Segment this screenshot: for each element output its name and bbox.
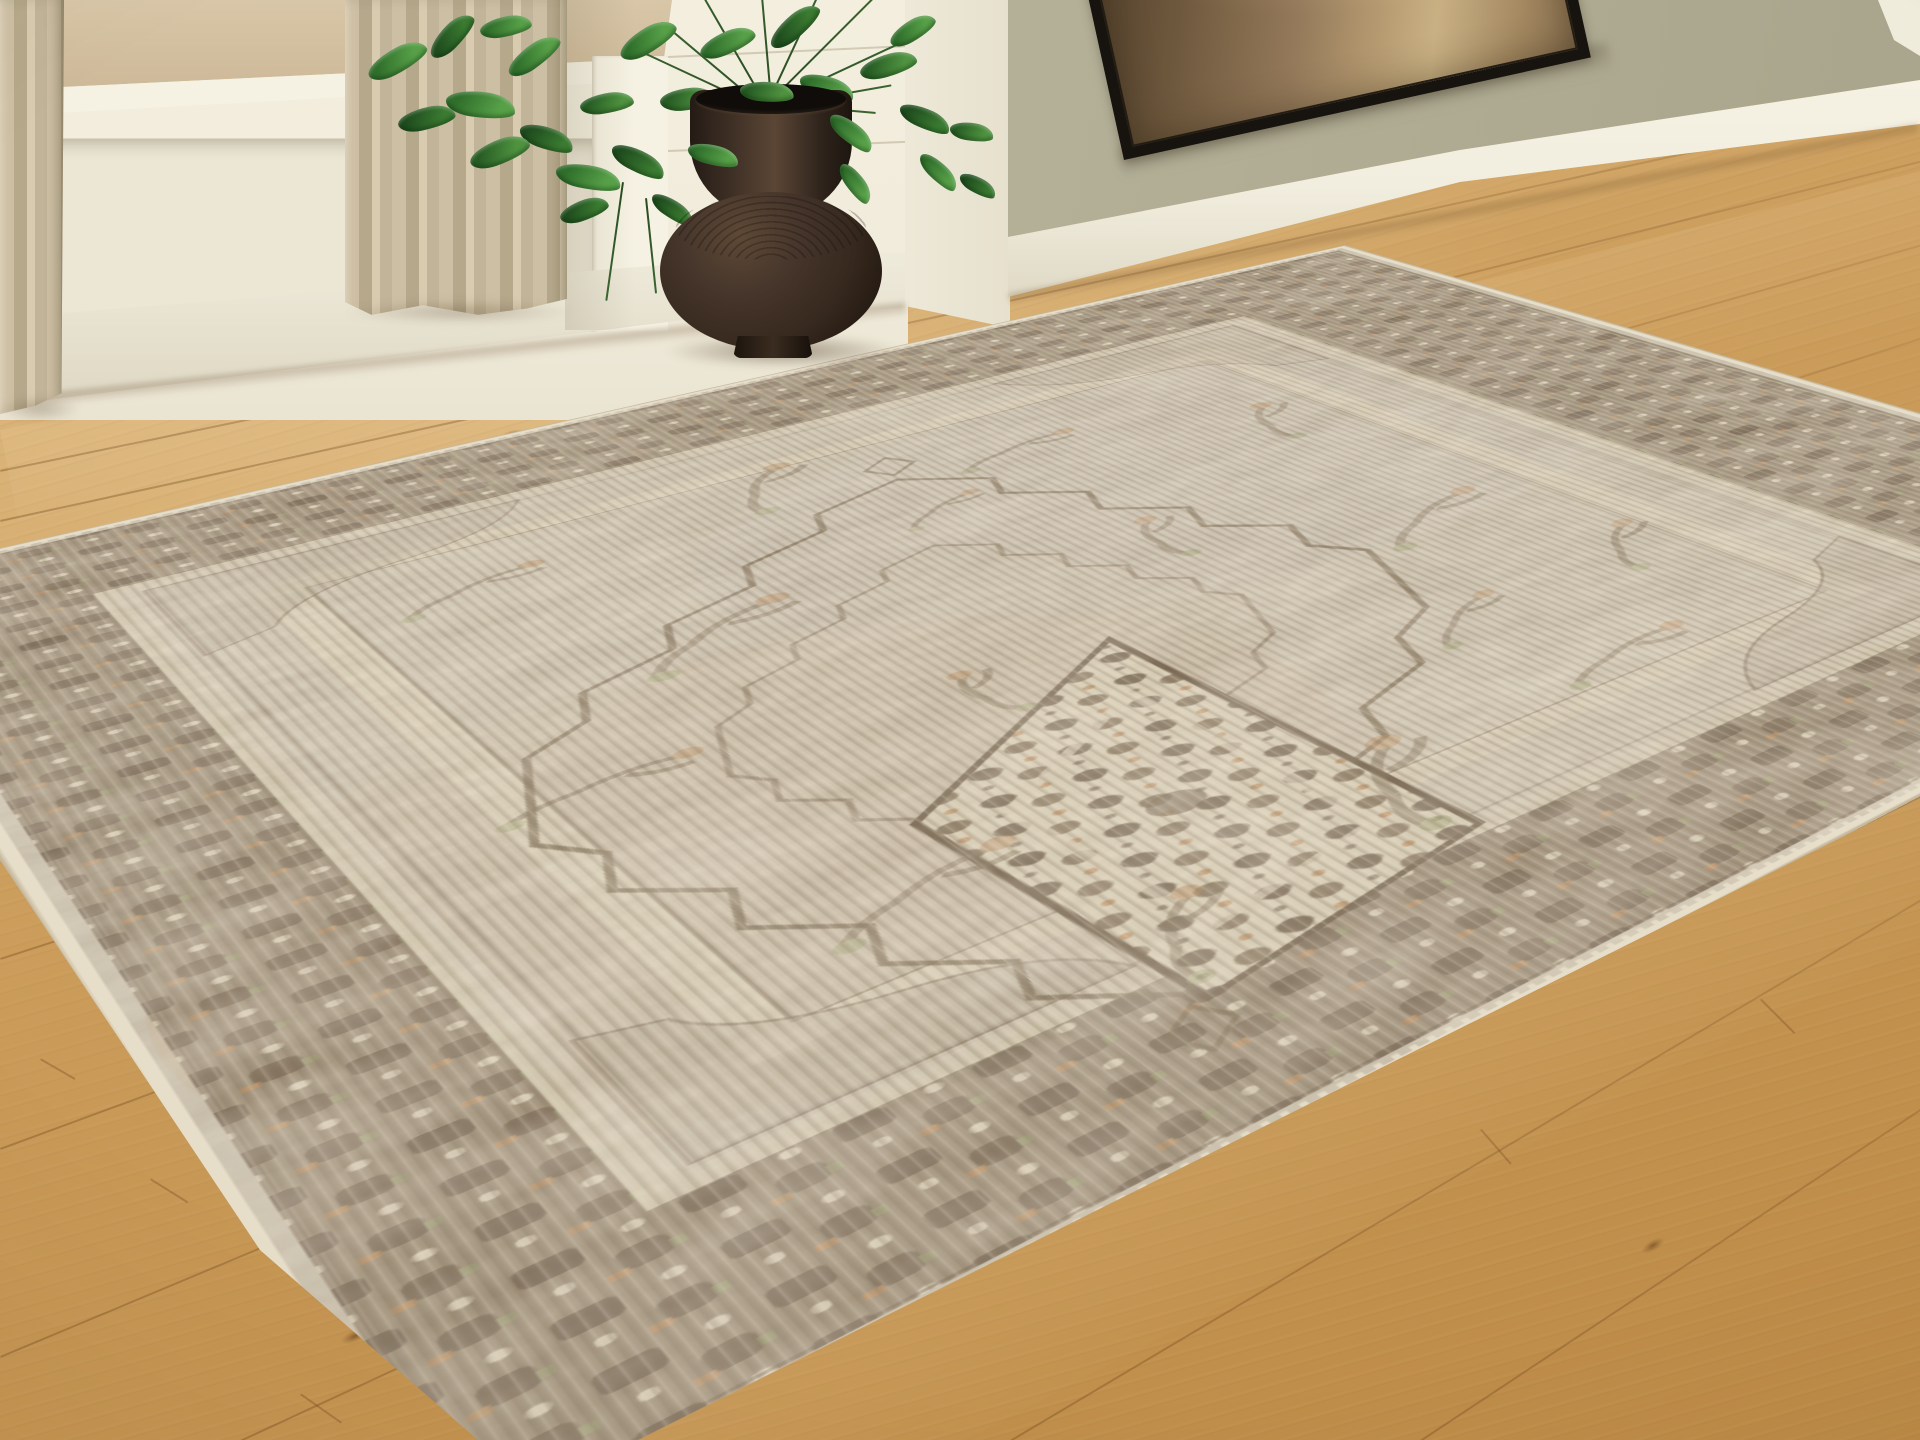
scene xyxy=(0,0,1920,1440)
curtain-hem-shadow xyxy=(0,396,80,422)
vase-foot xyxy=(733,336,813,358)
curtain-hem-shadow xyxy=(344,300,574,324)
curtain-left-panel xyxy=(0,0,64,414)
vase-ridges xyxy=(676,196,866,260)
